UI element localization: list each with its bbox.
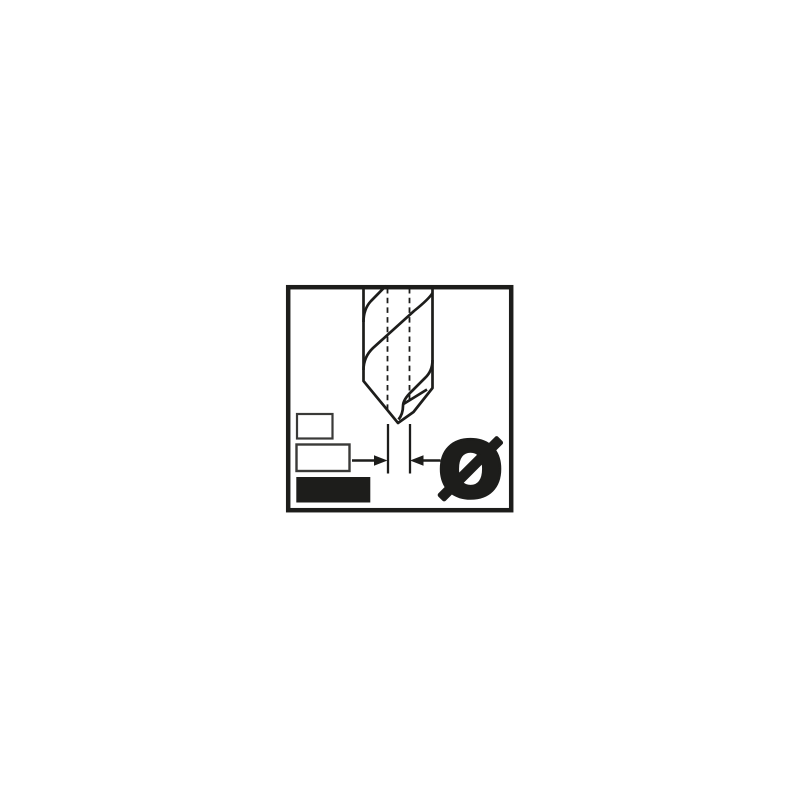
drill-diameter-pictogram: Ø (0, 0, 800, 800)
drill-flute-middle (364, 293, 433, 370)
drill-body-outline (364, 287, 433, 423)
dimension-arrow-right (410, 455, 441, 465)
size-square-small (297, 414, 333, 439)
size-square-medium (297, 445, 350, 472)
arrowhead-left-pointing-icon (410, 455, 424, 465)
size-squares (296, 414, 370, 503)
arrowhead-right-pointing-icon (374, 455, 388, 465)
drill-bit-illustration (364, 286, 433, 423)
dimension-arrow-left (352, 455, 388, 465)
size-square-large-filled (296, 477, 370, 503)
dimension-extension-lines (388, 424, 410, 474)
diameter-symbol: Ø (438, 426, 503, 515)
drill-flute-upper (364, 286, 387, 322)
centerlines (388, 288, 410, 409)
pictogram-canvas: Ø (0, 0, 800, 800)
